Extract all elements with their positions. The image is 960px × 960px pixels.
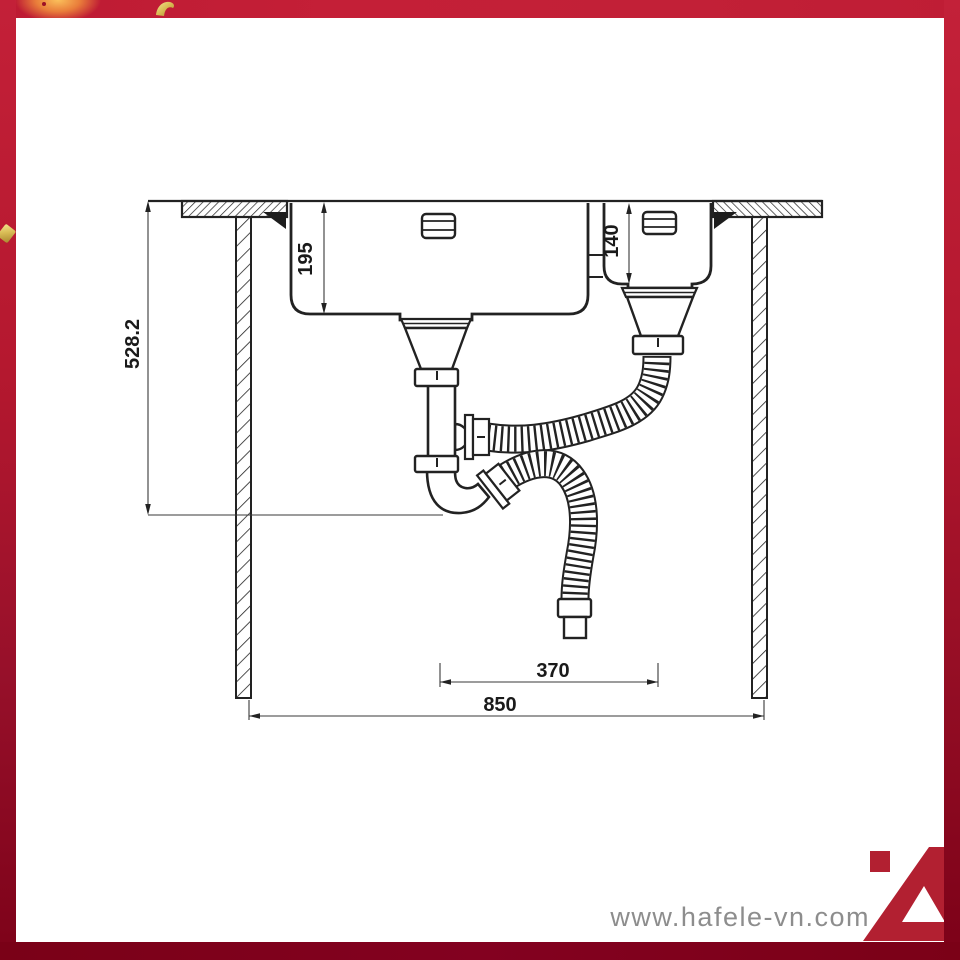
- tee-branch-plate: [465, 415, 473, 459]
- dimension-total-height: 528.2: [122, 201, 151, 515]
- confetti-dot: [42, 2, 46, 6]
- watermark-url: www.hafele-vn.com: [610, 902, 870, 933]
- dimension-total-width: 850: [249, 694, 764, 720]
- frame-border-left: [0, 0, 16, 960]
- dimension-drain-spacing: 370: [440, 660, 658, 687]
- frame-border-right: [944, 0, 960, 960]
- trap-pipe: [428, 384, 455, 459]
- dim-label-850: 850: [483, 694, 516, 716]
- corrugated-hose-lower: [506, 464, 584, 599]
- overflow-fitting-small: [643, 212, 676, 234]
- sink-technical-diagram: 528.2 195 140 370: [0, 0, 960, 960]
- main-drain-assembly: [401, 319, 522, 513]
- corrugated-hose-upper: [487, 356, 657, 439]
- confetti-ribbon-icon: [153, 0, 181, 18]
- hose-outlet: [558, 599, 591, 638]
- logo-umlaut-square: [870, 851, 890, 872]
- mounting-clip-right: [714, 212, 737, 229]
- dim-label-370: 370: [536, 660, 569, 682]
- frame-border-bottom: [0, 942, 960, 960]
- small-drain-assembly: [622, 288, 697, 354]
- product-spec-image: 528.2 195 140 370: [0, 0, 960, 960]
- drain-cone-small: [627, 297, 693, 336]
- drain-cone-main: [405, 328, 467, 369]
- overflow-fitting-main: [422, 214, 455, 238]
- dim-label-528-2: 528.2: [122, 319, 144, 369]
- cabinet-post-right: [752, 217, 767, 698]
- dim-label-140: 140: [601, 224, 623, 257]
- confetti-glow: [8, 0, 108, 18]
- frame-border-top: [0, 0, 960, 18]
- dimension-main-bowl-depth: 195: [295, 202, 327, 314]
- dim-label-195: 195: [295, 242, 317, 275]
- mounting-clip-left: [263, 212, 286, 229]
- cabinet-post-left: [236, 217, 251, 698]
